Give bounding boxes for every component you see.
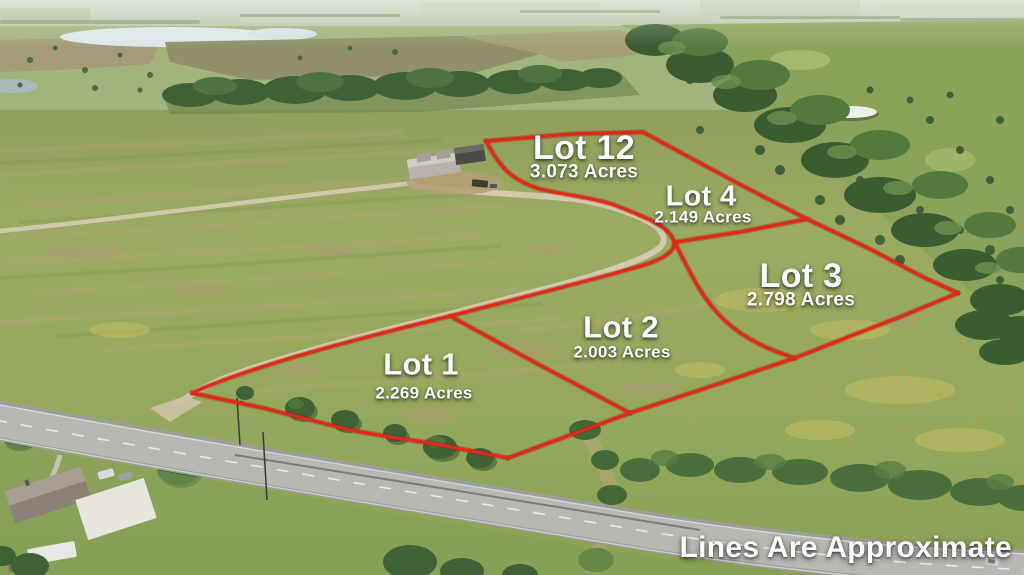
lines-approximate-disclaimer: Lines Are Approximate [680, 533, 1013, 563]
trailer-dark [472, 179, 489, 187]
atmospheric-haze [0, 0, 1024, 48]
aerial-listing-photo: Lot 12 3.073 Acres Lot 4 2.149 Acres Lot… [0, 0, 1024, 575]
aerial-scene [0, 0, 1024, 575]
lot-2-name: Lot 2 [583, 312, 659, 343]
lot-12-acres: 3.073 Acres [530, 163, 638, 182]
lot-2-acres: 2.003 Acres [573, 344, 670, 361]
lot-1-acres: 2.269 Acres [375, 385, 472, 402]
lot-4-acres: 2.149 Acres [654, 209, 751, 226]
lot-1-name: Lot 1 [383, 349, 459, 380]
lot-12-name: Lot 12 [533, 131, 635, 165]
lot-3-name: Lot 3 [760, 259, 843, 293]
lot-3-acres: 2.798 Acres [747, 291, 855, 310]
